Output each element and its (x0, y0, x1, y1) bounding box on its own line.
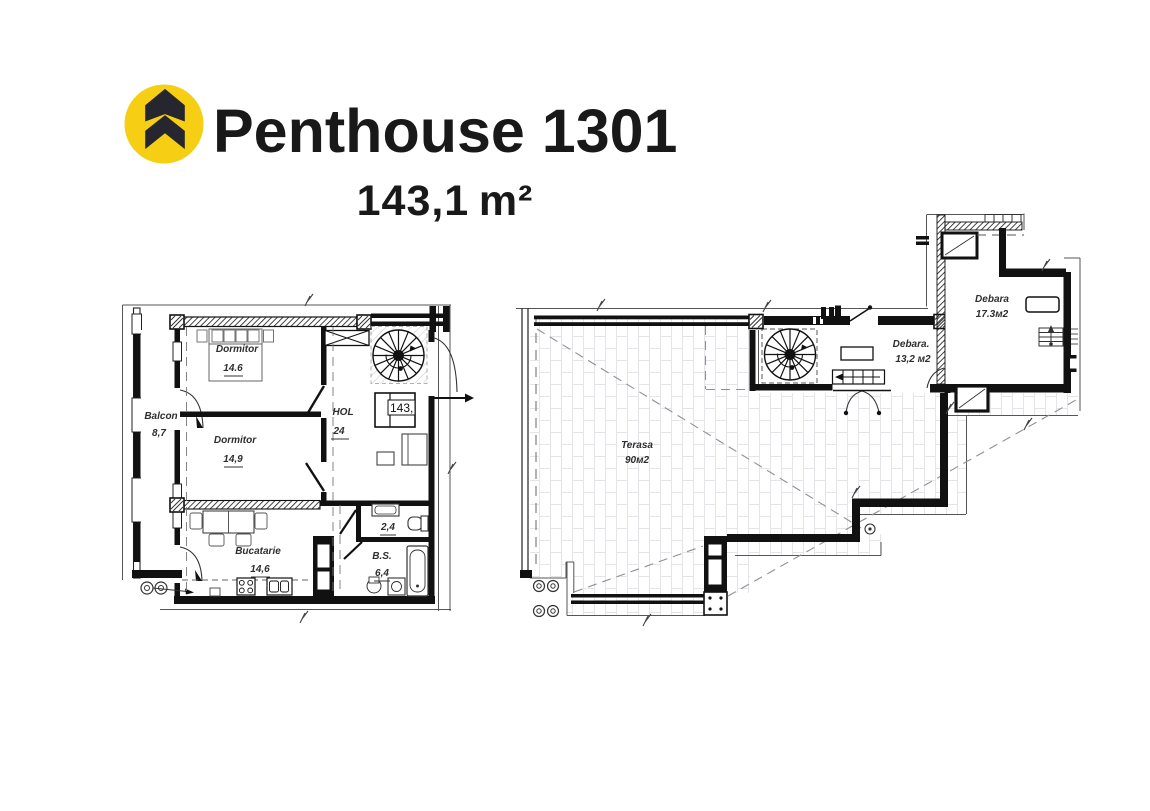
svg-text:Debara.: Debara. (893, 339, 930, 350)
svg-text:Bucatarie: Bucatarie (235, 546, 281, 557)
svg-text:143,: 143, (390, 401, 413, 415)
svg-text:6,4: 6,4 (375, 568, 389, 579)
svg-text:Debara: Debara (975, 294, 1009, 305)
svg-text:HOL: HOL (332, 407, 353, 418)
svg-text:2,4: 2,4 (380, 522, 395, 533)
svg-text:14.6: 14.6 (223, 363, 243, 374)
svg-text:8,7: 8,7 (152, 428, 166, 439)
svg-text:14,6: 14,6 (250, 564, 270, 575)
svg-text:17.3м2: 17.3м2 (976, 309, 1009, 320)
svg-text:90м2: 90м2 (625, 455, 650, 466)
svg-text:Dormitor: Dormitor (216, 344, 259, 355)
svg-text:Balcon: Balcon (144, 411, 177, 422)
svg-text:14,9: 14,9 (223, 454, 243, 465)
svg-text:B.S.: B.S. (372, 551, 391, 562)
svg-text:13,2 м2: 13,2 м2 (895, 354, 931, 365)
svg-text:Terasa: Terasa (621, 440, 653, 451)
svg-text:24: 24 (332, 426, 345, 437)
svg-text:Dormitor: Dormitor (214, 435, 257, 446)
